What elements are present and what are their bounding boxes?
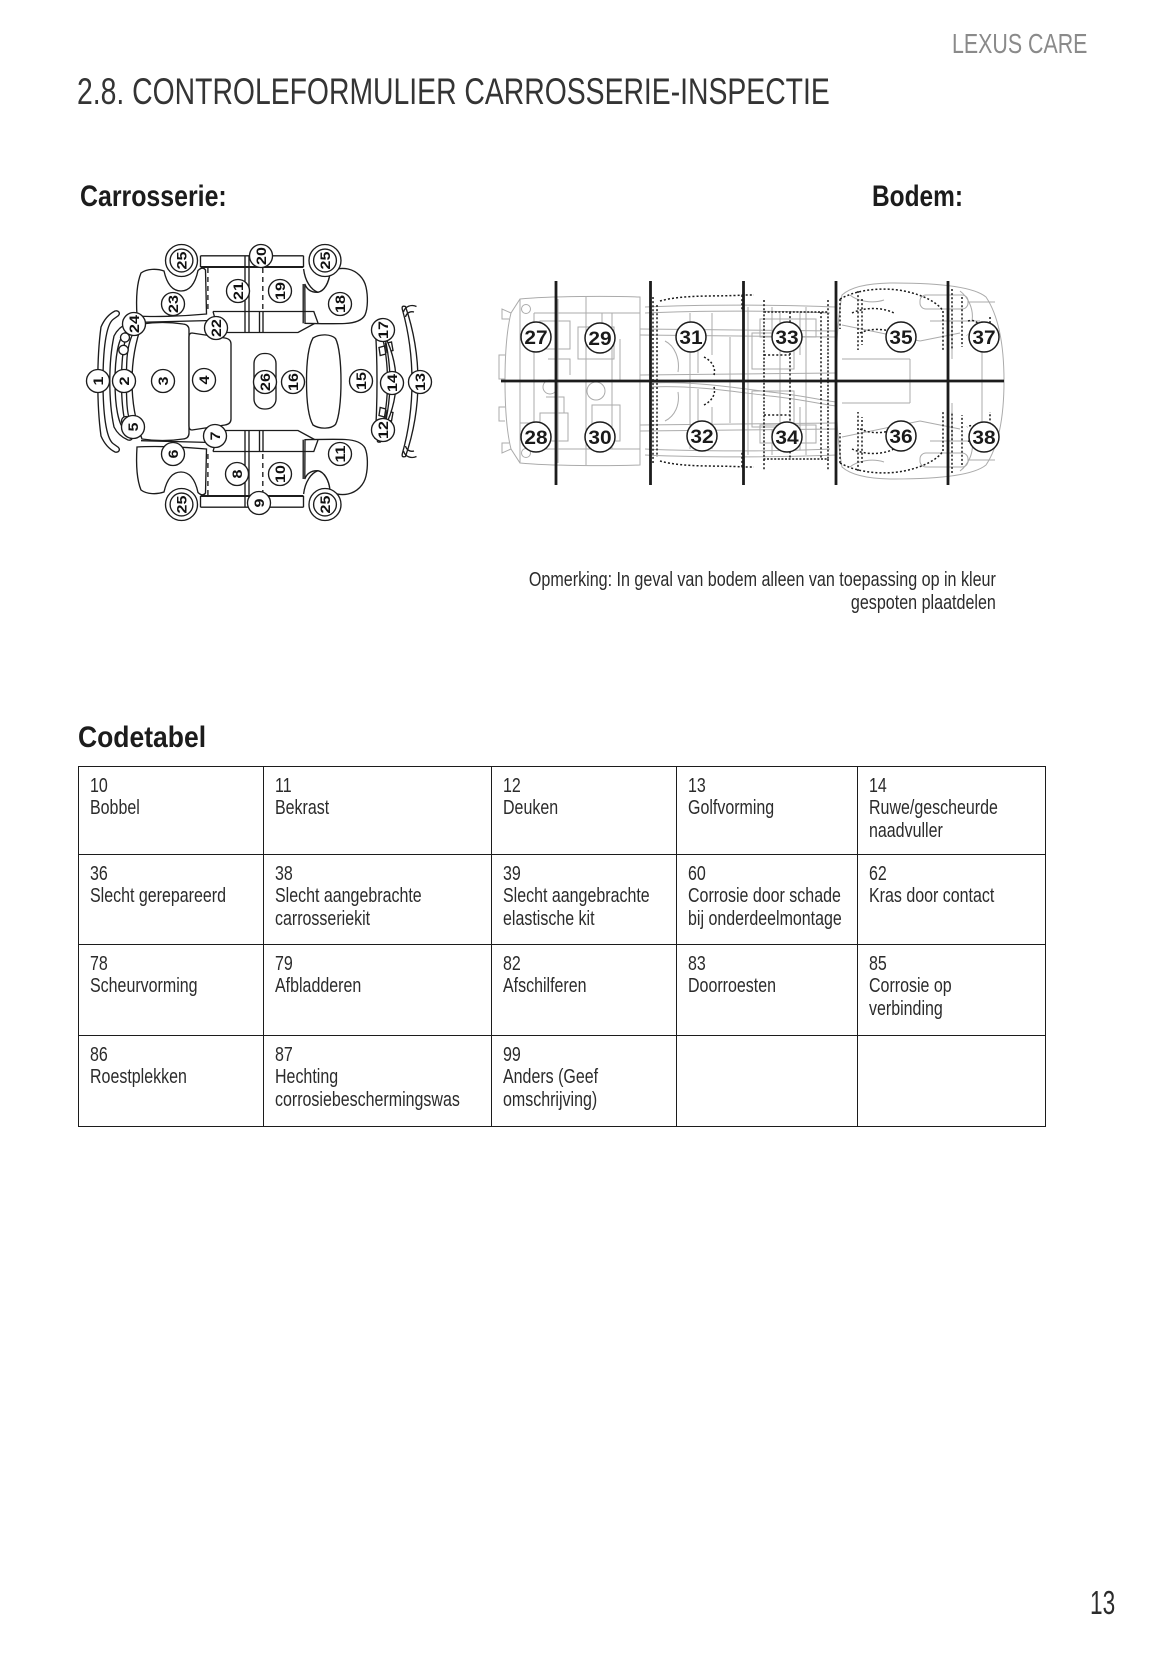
svg-text:13: 13 xyxy=(413,373,429,391)
svg-text:8: 8 xyxy=(230,470,246,479)
svg-text:23: 23 xyxy=(166,295,182,313)
svg-text:17: 17 xyxy=(376,321,392,339)
svg-text:18: 18 xyxy=(333,295,349,313)
svg-text:29: 29 xyxy=(588,329,611,350)
svg-text:25: 25 xyxy=(174,252,190,270)
svg-text:21: 21 xyxy=(231,282,247,300)
svg-text:24: 24 xyxy=(127,314,143,333)
svg-text:12: 12 xyxy=(376,421,392,439)
svg-text:10: 10 xyxy=(273,465,289,483)
svg-text:25: 25 xyxy=(318,496,334,514)
svg-text:36: 36 xyxy=(889,427,912,448)
svg-text:16: 16 xyxy=(286,373,302,391)
svg-text:2: 2 xyxy=(117,377,133,386)
svg-text:25: 25 xyxy=(318,252,334,270)
svg-text:22: 22 xyxy=(209,319,225,337)
svg-text:34: 34 xyxy=(775,428,798,449)
svg-text:28: 28 xyxy=(524,428,547,449)
svg-text:31: 31 xyxy=(679,328,702,349)
svg-text:25: 25 xyxy=(174,496,190,514)
svg-text:35: 35 xyxy=(889,328,912,349)
svg-text:33: 33 xyxy=(775,328,798,349)
svg-text:20: 20 xyxy=(254,247,270,265)
svg-text:38: 38 xyxy=(972,428,995,449)
svg-text:6: 6 xyxy=(166,450,182,459)
svg-text:5: 5 xyxy=(126,423,142,432)
svg-text:1: 1 xyxy=(91,377,107,386)
svg-text:26: 26 xyxy=(258,373,274,391)
svg-text:11: 11 xyxy=(333,445,349,462)
svg-text:15: 15 xyxy=(354,372,370,390)
svg-text:7: 7 xyxy=(208,432,224,441)
svg-text:19: 19 xyxy=(273,282,289,300)
svg-text:30: 30 xyxy=(588,428,611,449)
svg-text:27: 27 xyxy=(524,328,547,349)
svg-text:4: 4 xyxy=(197,375,213,385)
svg-text:9: 9 xyxy=(252,499,268,508)
svg-text:14: 14 xyxy=(385,373,401,392)
svg-text:3: 3 xyxy=(156,377,172,386)
svg-text:37: 37 xyxy=(972,328,995,349)
svg-text:32: 32 xyxy=(690,427,713,448)
